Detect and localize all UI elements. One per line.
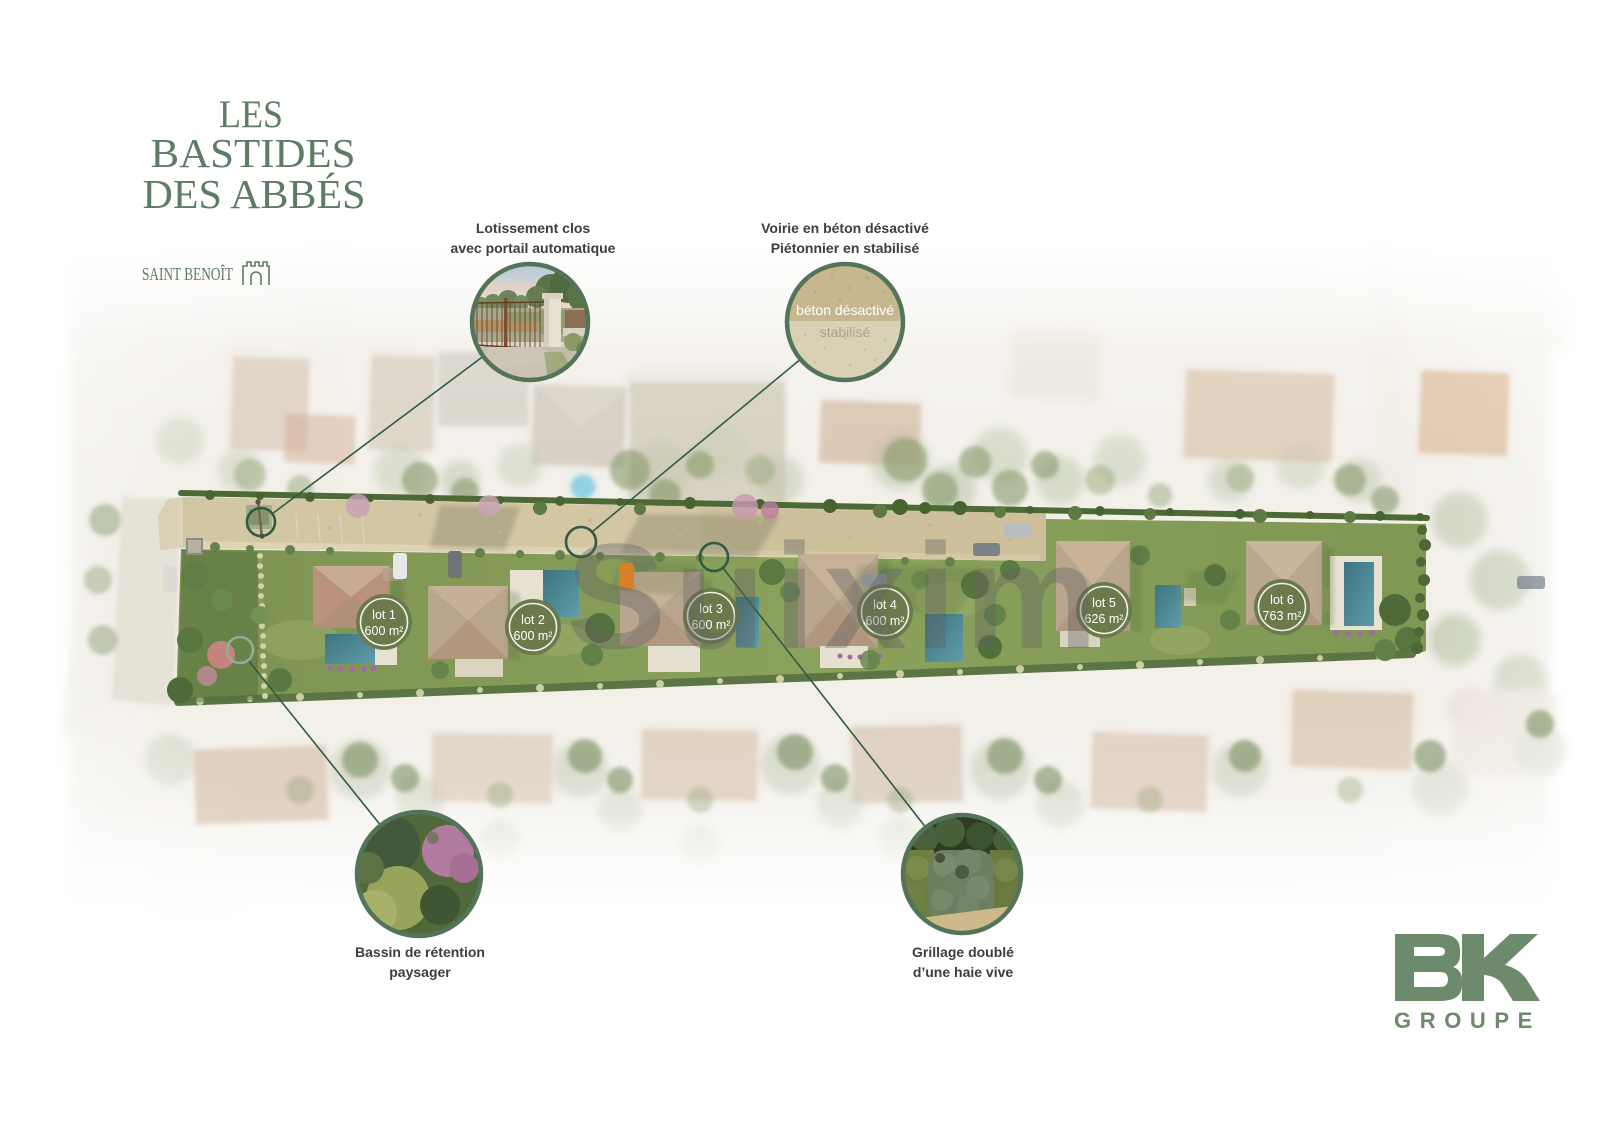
svg-text:Grillage doublé: Grillage doublé bbox=[912, 944, 1014, 960]
svg-text:Suixim: Suixim bbox=[566, 512, 1106, 680]
svg-text:stabilisé: stabilisé bbox=[820, 324, 871, 340]
svg-text:BASTIDES: BASTIDES bbox=[151, 130, 356, 176]
svg-text:Voirie en béton désactivé: Voirie en béton désactivé bbox=[761, 220, 929, 236]
svg-text:Lotissement clos: Lotissement clos bbox=[476, 220, 591, 236]
svg-text:lot 2: lot 2 bbox=[521, 613, 545, 627]
svg-text:DES ABBÉS: DES ABBÉS bbox=[143, 171, 366, 217]
svg-text:Bassin de rétention: Bassin de rétention bbox=[355, 944, 485, 960]
svg-text:d’une haie vive: d’une haie vive bbox=[913, 964, 1014, 980]
svg-text:SAINT BENOÎT: SAINT BENOÎT bbox=[142, 263, 233, 284]
svg-text:lot 6: lot 6 bbox=[1270, 593, 1294, 607]
svg-text:600 m²: 600 m² bbox=[514, 629, 553, 643]
svg-text:600 m²: 600 m² bbox=[365, 624, 404, 638]
svg-text:Piétonnier en stabilisé: Piétonnier en stabilisé bbox=[771, 240, 920, 256]
svg-text:763 m²: 763 m² bbox=[1263, 609, 1302, 623]
svg-text:béton désactivé: béton désactivé bbox=[796, 302, 894, 318]
svg-text:paysager: paysager bbox=[389, 964, 451, 980]
svg-text:lot 1: lot 1 bbox=[372, 608, 396, 622]
svg-text:GROUPE: GROUPE bbox=[1394, 1008, 1541, 1033]
svg-text:avec portail automatique: avec portail automatique bbox=[451, 240, 616, 256]
